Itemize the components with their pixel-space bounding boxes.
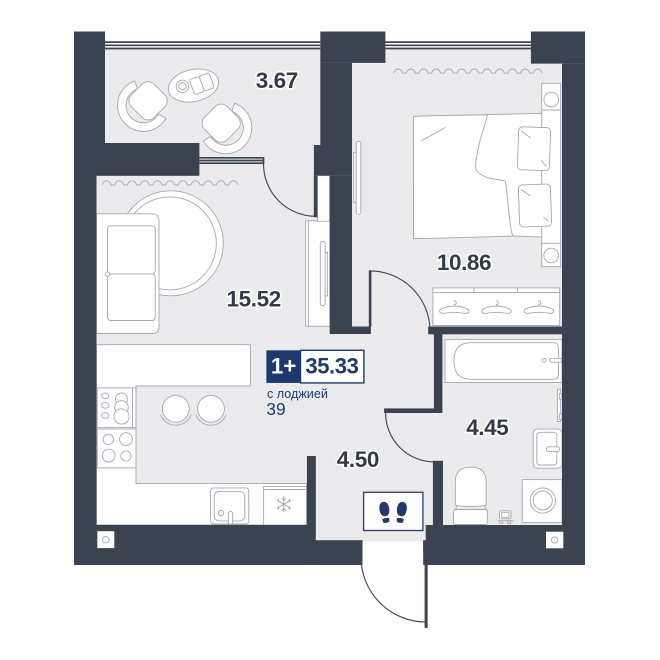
svg-text:4.45: 4.45: [466, 415, 508, 440]
svg-text:15.52: 15.52: [227, 287, 281, 312]
svg-text:4.50: 4.50: [337, 447, 379, 472]
svg-text:35.33: 35.33: [305, 353, 358, 378]
svg-text:3.67: 3.67: [256, 68, 298, 93]
svg-text:39: 39: [266, 399, 285, 419]
svg-text:1+: 1+: [271, 353, 297, 378]
svg-text:10.86: 10.86: [437, 250, 491, 275]
